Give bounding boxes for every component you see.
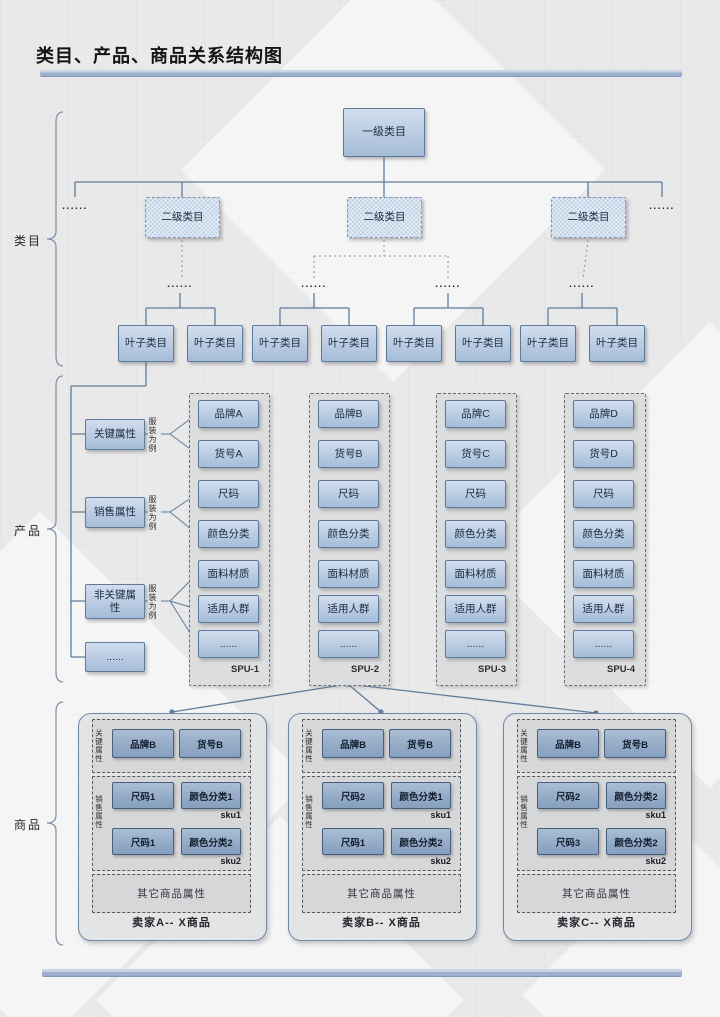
size-node: 尺码2 (322, 782, 384, 809)
spu-attribute-node: 货号C (445, 440, 506, 468)
category-tree-lines (75, 157, 662, 197)
attribute-group-node: 关键属性 (85, 419, 145, 450)
spu-attribute-node: 面料材质 (573, 560, 634, 588)
sku-label: sku2 (161, 856, 241, 866)
spu-attribute-node: 货号A (198, 440, 259, 468)
sales-attr-vertical-label: 销售属性 (520, 782, 528, 842)
spu-attribute-node: 尺码 (318, 480, 379, 508)
clothing-example-note: 服装为例 (148, 485, 156, 540)
page-title: 类目、产品、商品关系结构图 (36, 42, 283, 68)
sales-attr-vertical-label: 销售属性 (95, 782, 103, 842)
spu-to-seller-lines (172, 684, 596, 713)
spu-attribute-node: 品牌A (198, 400, 259, 428)
spu-name-label: SPU-4 (565, 664, 635, 675)
section-label-product: 产品 (14, 522, 42, 539)
spu-attribute-node: 尺码 (198, 480, 259, 508)
section-label-commodity: 商品 (14, 816, 42, 833)
seller-caption: 卖家C-- X商品 (503, 914, 690, 930)
color-node: 颜色分类2 (181, 828, 241, 855)
seller-caption: 卖家A-- X商品 (78, 914, 265, 930)
leaf-bracket-lines (146, 293, 617, 325)
spu-attribute-node: 货号B (318, 440, 379, 468)
clothing-example-note: 服装为例 (148, 574, 156, 630)
leaf-category-node: 叶子类目 (252, 325, 308, 362)
attribute-group-node: ...... (85, 642, 145, 672)
level1-category-node: 一级类目 (343, 108, 425, 157)
more-categories-ellipsis: ...... (637, 201, 687, 212)
attribute-group-node: 销售属性 (85, 497, 145, 528)
item-number-node: 货号B (604, 729, 666, 758)
spu-attribute-node: ...... (573, 630, 634, 658)
spu-name-label: SPU-1 (189, 664, 259, 675)
size-node: 尺码1 (112, 782, 174, 809)
item-number-node: 货号B (389, 729, 451, 758)
spu-attribute-node: 品牌D (573, 400, 634, 428)
size-node: 尺码2 (537, 782, 599, 809)
footer-bar (42, 969, 682, 977)
size-node: 尺码1 (322, 828, 384, 855)
spu-name-label: SPU-3 (436, 664, 506, 675)
key-attr-vertical-label: 关键属性 (95, 724, 103, 768)
sku-label: sku2 (586, 856, 666, 866)
spu-attribute-node: 颜色分类 (573, 520, 634, 548)
more-categories-ellipsis: ...... (289, 279, 339, 290)
category-brace (47, 112, 63, 366)
spu-attribute-node: ...... (445, 630, 506, 658)
product-brace (47, 376, 63, 682)
color-node: 颜色分类1 (181, 782, 241, 809)
level2-category-node: 二级类目 (145, 197, 220, 238)
brand-node: 品牌B (537, 729, 599, 758)
spu-name-label: SPU-2 (309, 664, 379, 675)
level2-category-node: 二级类目 (347, 197, 422, 238)
title-underline-bar (40, 70, 682, 77)
other-attr-group: 其它商品属性 (302, 874, 461, 913)
leaf-category-node: 叶子类目 (118, 325, 174, 362)
spu-attribute-node: 货号D (573, 440, 634, 468)
more-categories-ellipsis: ...... (50, 201, 100, 212)
section-label-category: 类目 (14, 232, 42, 249)
spu-attribute-node: ...... (318, 630, 379, 658)
key-attr-vertical-label: 关键属性 (520, 724, 528, 768)
attribute-group-node: 非关键属性 (85, 584, 145, 619)
size-node: 尺码3 (537, 828, 599, 855)
spu-attribute-node: 面料材质 (198, 560, 259, 588)
spu-attribute-node: 面料材质 (445, 560, 506, 588)
leaf-category-node: 叶子类目 (386, 325, 442, 362)
item-number-node: 货号B (179, 729, 241, 758)
spu-attribute-node: 适用人群 (445, 595, 506, 623)
leaf-category-node: 叶子类目 (520, 325, 576, 362)
clothing-example-note: 服装为例 (148, 407, 156, 462)
leaf-category-node: 叶子类目 (589, 325, 645, 362)
sales-attr-vertical-label: 销售属性 (305, 782, 313, 842)
other-attr-group: 其它商品属性 (517, 874, 676, 913)
category-dotted-lines (182, 240, 588, 279)
more-categories-ellipsis: ...... (423, 279, 473, 290)
commodity-brace (47, 702, 63, 945)
sku-label: sku1 (586, 810, 666, 820)
color-node: 颜色分类2 (606, 782, 666, 809)
color-node: 颜色分类1 (391, 782, 451, 809)
spu-attribute-node: 适用人群 (318, 595, 379, 623)
more-categories-ellipsis: ...... (155, 279, 205, 290)
spu-attribute-node: ...... (198, 630, 259, 658)
seller-caption: 卖家B-- X商品 (288, 914, 475, 930)
brand-node: 品牌B (112, 729, 174, 758)
spu-attribute-node: 适用人群 (573, 595, 634, 623)
leaf-category-node: 叶子类目 (321, 325, 377, 362)
spu-attribute-node: 品牌C (445, 400, 506, 428)
other-attr-group: 其它商品属性 (92, 874, 251, 913)
key-attr-vertical-label: 关键属性 (305, 724, 313, 768)
spu-attribute-node: 适用人群 (198, 595, 259, 623)
spu-attribute-node: 颜色分类 (198, 520, 259, 548)
spu-attribute-node: 品牌B (318, 400, 379, 428)
spu-attribute-node: 颜色分类 (445, 520, 506, 548)
color-node: 颜色分类2 (391, 828, 451, 855)
spu-attribute-node: 颜色分类 (318, 520, 379, 548)
spu-attribute-node: 面料材质 (318, 560, 379, 588)
sku-label: sku1 (371, 810, 451, 820)
level2-category-node: 二级类目 (551, 197, 626, 238)
color-node: 颜色分类2 (606, 828, 666, 855)
brand-node: 品牌B (322, 729, 384, 758)
more-categories-ellipsis: ...... (557, 279, 607, 290)
sku-label: sku1 (161, 810, 241, 820)
sku-label: sku2 (371, 856, 451, 866)
spu-attribute-node: 尺码 (445, 480, 506, 508)
size-node: 尺码1 (112, 828, 174, 855)
spu-attribute-node: 尺码 (573, 480, 634, 508)
leaf-category-node: 叶子类目 (455, 325, 511, 362)
diagram-canvas: 类目、产品、商品关系结构图 类目 产品 商品 一级类目 二级类目 二级类目 二级… (0, 0, 720, 1017)
leaf-category-node: 叶子类目 (187, 325, 243, 362)
